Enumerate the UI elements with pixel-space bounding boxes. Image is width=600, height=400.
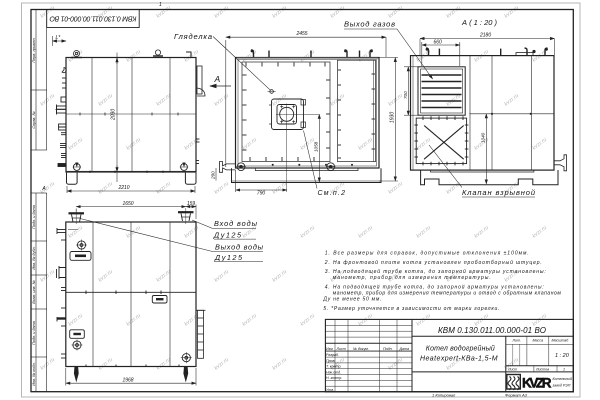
svg-text:завод РЭП: завод РЭП bbox=[552, 384, 571, 388]
svg-text:1650: 1650 bbox=[122, 201, 133, 207]
svg-text:Масштаб: Масштаб bbox=[552, 339, 570, 343]
svg-text:Листов: Листов bbox=[535, 367, 549, 371]
svg-text:А: А bbox=[41, 186, 46, 192]
svg-text:Котел водогрейный: Котел водогрейный bbox=[426, 345, 495, 353]
svg-text:манометр, прибор для измерения: манометр, прибор для измерения температу… bbox=[333, 275, 491, 281]
svg-text:KVZR: KVZR bbox=[522, 376, 552, 391]
svg-text:2210: 2210 bbox=[117, 185, 129, 191]
svg-text:Разраб.: Разраб. bbox=[326, 353, 339, 357]
svg-text:Н. контр.: Н. контр. bbox=[326, 376, 342, 380]
svg-text:Котельный: Котельный bbox=[553, 377, 573, 381]
svg-text:Выход газов: Выход газов bbox=[344, 20, 395, 29]
svg-text:Лит.: Лит. bbox=[512, 339, 521, 343]
svg-text:5. *Размер уточняется в зависи: 5. *Размер уточняется в зависимости от м… bbox=[323, 306, 499, 312]
svg-text:А ( 1 : 20 ): А ( 1 : 20 ) bbox=[461, 18, 498, 27]
svg-text:159: 159 bbox=[187, 201, 196, 207]
svg-text:См.п.2: См.п.2 bbox=[318, 190, 346, 197]
svg-text:1: 1 bbox=[159, 2, 162, 8]
svg-text:Справ. №: Справ. № bbox=[32, 111, 36, 128]
svg-text:Т. контр.: Т. контр. bbox=[326, 365, 342, 369]
svg-text:1058: 1058 bbox=[314, 141, 319, 152]
svg-text:КВМ 0.130.011.00.000-01 ВО: КВМ 0.130.011.00.000-01 ВО bbox=[438, 326, 546, 335]
svg-text:4. На подводящей трубе котла,: 4. На подводящей трубе котла, до запорно… bbox=[325, 284, 545, 291]
svg-text:Пров.: Пров. bbox=[326, 359, 335, 363]
svg-text:2455: 2455 bbox=[295, 31, 307, 37]
svg-text:Гляделка: Гляделка bbox=[174, 32, 212, 41]
svg-text:Подп. и дата: Подп. и дата bbox=[32, 205, 36, 229]
svg-text:Изм: Изм bbox=[326, 347, 333, 351]
svg-text:Утв.: Утв. bbox=[326, 388, 334, 392]
svg-text:2030: 2030 bbox=[111, 109, 117, 121]
svg-text:Лист: Лист bbox=[336, 347, 346, 351]
svg-text:Формат А3: Формат А3 bbox=[505, 393, 528, 398]
svg-text:660: 660 bbox=[434, 40, 443, 46]
svg-text:Ду125: Ду125 bbox=[213, 230, 242, 239]
svg-text:Клапан взрывной: Клапан взрывной bbox=[462, 188, 536, 197]
svg-text:1. Все размеры для справок, до: 1. Все размеры для справок, допустимые о… bbox=[325, 250, 529, 256]
svg-text:КВМ 0.130.011.00.000-01 ВО: КВМ 0.130.011.00.000-01 ВО bbox=[49, 15, 137, 22]
svg-text:Подп. и дата: Подп. и дата bbox=[32, 321, 36, 345]
svg-text:1040: 1040 bbox=[481, 132, 486, 143]
svg-text:700: 700 bbox=[403, 91, 408, 99]
svg-text:1 Копировал: 1 Копировал bbox=[432, 393, 456, 398]
svg-text:Heatexpert-КВа-1,5-М: Heatexpert-КВа-1,5-М bbox=[420, 356, 498, 363]
svg-text:3. На подводящей трубе котла,: 3. На подводящей трубе котла, до запорно… bbox=[325, 268, 547, 275]
svg-text:Инв. № дубл.: Инв. № дубл. bbox=[32, 246, 36, 269]
svg-text:2. На фронтовой плите котла ус: 2. На фронтовой плите котла установлен п… bbox=[324, 259, 542, 266]
svg-text:1930: 1930 bbox=[390, 112, 396, 123]
svg-text:Взам. инв. №: Взам. инв. № bbox=[32, 280, 36, 303]
svg-text:1968: 1968 bbox=[122, 378, 133, 384]
svg-text:1: 1 bbox=[563, 367, 565, 371]
svg-text:Подп.: Подп. bbox=[383, 347, 393, 351]
svg-text:Лист: Лист bbox=[507, 367, 517, 371]
svg-text:Масса: Масса bbox=[533, 339, 544, 343]
svg-text:2180: 2180 bbox=[479, 33, 491, 39]
svg-text:Выход воды: Выход воды bbox=[215, 242, 264, 251]
svg-text:Дата: Дата bbox=[399, 347, 409, 351]
svg-text:№ докум.: № докум. bbox=[353, 347, 369, 351]
svg-text:Инв. № подл.: Инв. № подл. bbox=[32, 362, 36, 386]
svg-text:Нач.отд.: Нач.отд. bbox=[326, 370, 341, 374]
svg-text:Ду125: Ду125 bbox=[214, 253, 243, 262]
svg-text:Перв. примен.: Перв. примен. bbox=[32, 37, 36, 62]
svg-text:1 : 20: 1 : 20 bbox=[555, 353, 570, 359]
svg-text:Вход воды: Вход воды bbox=[214, 219, 258, 228]
svg-text:Ду не менее 50 мм.: Ду не менее 50 мм. bbox=[322, 297, 381, 303]
svg-text:А: А bbox=[214, 74, 221, 84]
svg-text:290: 290 bbox=[211, 171, 216, 180]
svg-text:790: 790 bbox=[257, 191, 266, 197]
